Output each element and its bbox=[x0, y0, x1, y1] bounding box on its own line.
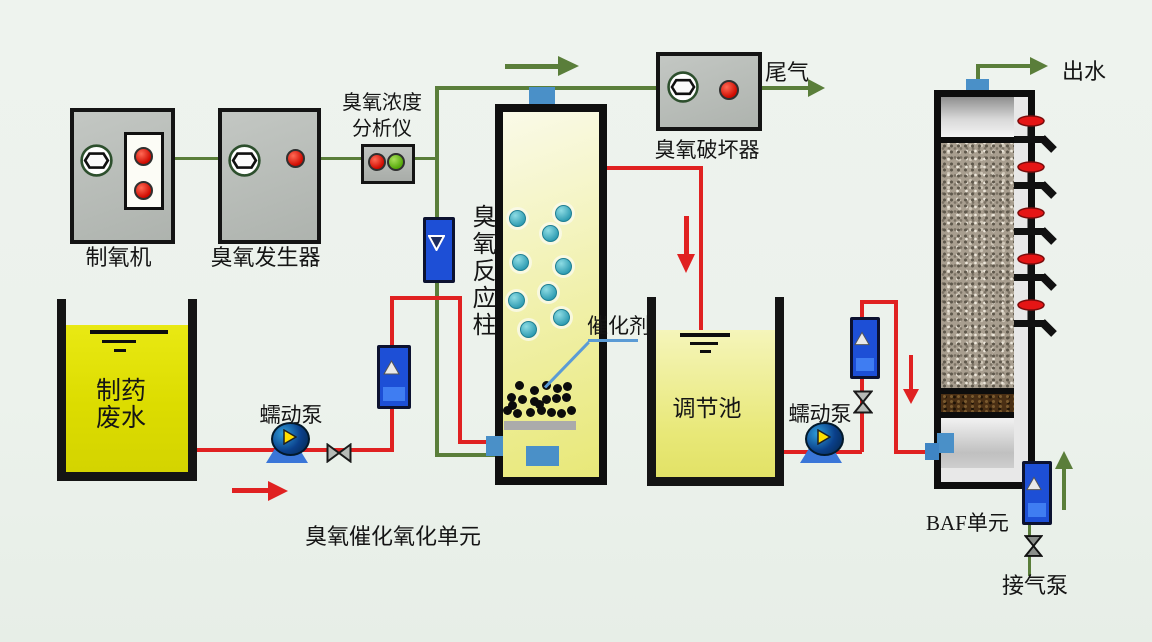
column-side-fitting bbox=[486, 436, 503, 456]
pump-rotor-icon bbox=[817, 429, 831, 445]
catalyst-dot bbox=[513, 409, 522, 418]
red-indicator-icon bbox=[286, 149, 305, 168]
catalyst-pointer-line bbox=[588, 339, 638, 342]
down-flow-arrow-icon bbox=[677, 254, 695, 273]
catalyst-dot bbox=[503, 406, 512, 415]
pipe-feed-drop bbox=[458, 296, 462, 444]
red-indicator-icon bbox=[134, 181, 153, 200]
catalyst-dot bbox=[563, 382, 572, 391]
catalyst-dot bbox=[552, 394, 561, 403]
baf-media-bed bbox=[941, 143, 1014, 388]
catalyst-dot bbox=[530, 386, 539, 395]
pipe-transfer-top bbox=[860, 300, 898, 304]
baf-flow-arrow-stem bbox=[909, 355, 913, 391]
valve-icon bbox=[853, 390, 873, 414]
offgas-arrow-icon bbox=[808, 79, 825, 97]
bubble-icon bbox=[512, 254, 529, 271]
water-surface-icon bbox=[700, 350, 711, 353]
catalyst-dot bbox=[518, 395, 527, 404]
reaction-column-label: 臭氧反应柱 bbox=[464, 204, 499, 339]
water-surface-icon bbox=[680, 333, 730, 337]
catalyst-dot bbox=[515, 381, 524, 390]
sampling-tap-icon bbox=[1012, 204, 1058, 248]
pipe-baf-drop bbox=[894, 300, 898, 454]
flowmeter-icon bbox=[850, 317, 880, 379]
section-label: 臭氧催化氧化单元 bbox=[305, 519, 481, 551]
bubble-icon bbox=[555, 258, 572, 275]
flowmeter-arrow-up-icon bbox=[383, 360, 400, 375]
valve-icon bbox=[326, 443, 352, 463]
bubble-icon bbox=[542, 225, 559, 242]
baf-flow-arrow-icon bbox=[903, 389, 919, 404]
catalyst-dot bbox=[567, 406, 576, 415]
distributor-plate bbox=[504, 421, 576, 430]
feed-flow-arrow-stem bbox=[232, 488, 270, 493]
gas-flow-arrow-icon bbox=[558, 56, 579, 76]
baf-support-layer bbox=[941, 394, 1014, 412]
flowmeter-icon bbox=[377, 345, 411, 409]
water-surface-icon bbox=[690, 342, 718, 345]
water-surface-icon bbox=[102, 340, 136, 343]
air-flow-arrow-icon bbox=[1055, 451, 1073, 469]
dial-icon bbox=[227, 143, 262, 178]
catalyst-dot bbox=[526, 408, 535, 417]
bubble-icon bbox=[540, 284, 557, 301]
pipe-effluent-top bbox=[976, 64, 1032, 68]
bubble-icon bbox=[509, 210, 526, 227]
bubble-icon bbox=[555, 205, 572, 222]
catalyst-dot bbox=[547, 408, 556, 417]
flowmeter-icon bbox=[1022, 461, 1052, 525]
valve-icon bbox=[1024, 534, 1043, 558]
analyzer-label-line2: 分析仪 bbox=[332, 112, 432, 141]
feed-flow-arrow-icon bbox=[268, 481, 288, 501]
flowmeter-arrow-down-icon bbox=[428, 235, 445, 251]
regulation-tank-label: 调节池 bbox=[657, 389, 757, 423]
catalyst-dot bbox=[553, 384, 562, 393]
ozone-destructor-label: 臭氧破坏器 bbox=[648, 134, 766, 164]
catalyst-label: 催化剂 bbox=[587, 310, 650, 340]
process-flow-diagram: 制氧机 臭氧发生器 臭氧浓度 分析仪 臭氧破坏器 尾气 制药废水 蠕动泵 bbox=[0, 0, 1152, 642]
pump2-label: 蠕动泵 bbox=[780, 398, 860, 428]
analyzer-label-line1: 臭氧浓度 bbox=[332, 86, 432, 115]
ozone-generator-label: 臭氧发生器 bbox=[205, 240, 326, 272]
bubble-icon bbox=[508, 292, 525, 309]
effluent-arrow-icon bbox=[1030, 57, 1048, 75]
water-surface-icon bbox=[90, 330, 168, 334]
water-surface-icon bbox=[114, 349, 126, 352]
sampling-tap-icon bbox=[1012, 250, 1058, 294]
pipe-feed-top bbox=[390, 296, 462, 300]
flowmeter-arrow-up-icon bbox=[854, 331, 870, 346]
sampling-tap-icon bbox=[1012, 112, 1058, 156]
effluent-label: 出水 bbox=[1062, 54, 1106, 86]
pipe-baf-inlet bbox=[894, 450, 928, 454]
flowmeter-arrow-up-icon bbox=[1026, 476, 1042, 491]
bubble-icon bbox=[520, 321, 537, 338]
dial-icon bbox=[79, 143, 114, 178]
flowmeter-float bbox=[856, 358, 874, 371]
gas-flow-arrow-stem bbox=[505, 64, 560, 69]
flowmeter-float bbox=[1028, 503, 1046, 517]
green-indicator-icon bbox=[387, 153, 405, 171]
catalyst-dot bbox=[537, 406, 546, 415]
pump1-label: 蠕动泵 bbox=[251, 399, 331, 429]
air-flow-arrow-stem bbox=[1062, 468, 1066, 510]
bubble-icon bbox=[553, 309, 570, 326]
catalyst-dot bbox=[562, 393, 571, 402]
sampling-tap-icon bbox=[1012, 296, 1058, 340]
baf-inner-fitting bbox=[937, 433, 954, 453]
down-flow-arrow-stem bbox=[684, 216, 689, 256]
baf-unit-label: BAF单元 bbox=[926, 507, 1009, 537]
air-pump-label: 接气泵 bbox=[1002, 568, 1068, 600]
tail-gas-label: 尾气 bbox=[765, 55, 809, 87]
red-indicator-icon bbox=[134, 147, 153, 166]
catalyst-dot bbox=[557, 409, 566, 418]
baf-headspace bbox=[941, 97, 1014, 137]
baf-inlet-fitting bbox=[925, 443, 939, 460]
wastewater-label: 制药废水 bbox=[71, 378, 171, 432]
pump-rotor-icon bbox=[283, 429, 297, 445]
flowmeter-float bbox=[383, 387, 405, 401]
dial-icon bbox=[666, 70, 700, 104]
column-bottom-fitting bbox=[526, 446, 559, 466]
red-indicator-icon bbox=[719, 80, 739, 100]
oxygen-generator-label: 制氧机 bbox=[70, 240, 167, 272]
red-indicator-icon bbox=[368, 153, 386, 171]
sampling-tap-icon bbox=[1012, 158, 1058, 202]
